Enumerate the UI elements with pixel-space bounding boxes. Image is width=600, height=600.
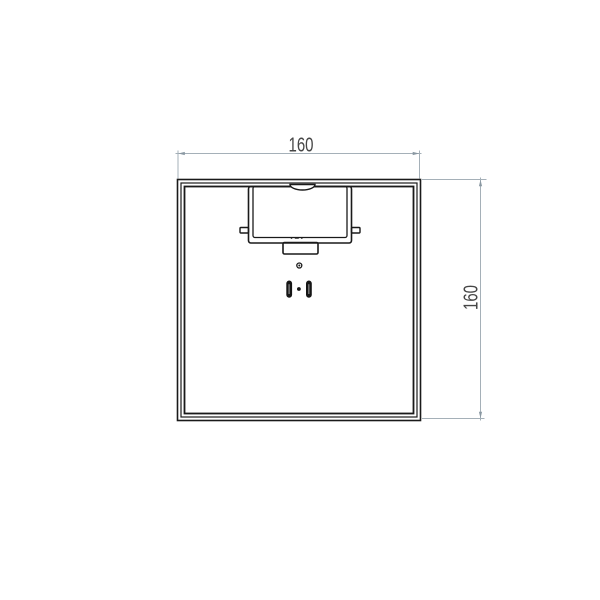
drawing-page: 160 160 xyxy=(0,0,600,600)
latch-dot-right xyxy=(301,237,303,239)
height-dimension-label: 160 xyxy=(461,285,483,310)
part-frame xyxy=(178,180,421,421)
height-arrow-bottom xyxy=(479,412,482,419)
width-arrow-right xyxy=(413,152,420,155)
hole-features xyxy=(286,263,312,298)
box-inner-wall xyxy=(253,187,347,238)
width-arrow-left xyxy=(178,152,185,155)
drawing-canvas: 160 160 xyxy=(0,0,600,600)
latch-dot-left xyxy=(291,237,293,239)
frame-outer-edge xyxy=(178,180,421,421)
box-right-tab xyxy=(352,228,361,234)
width-dimension-label: 160 xyxy=(289,135,314,157)
box-outer-wall xyxy=(249,187,352,244)
box-left-tab xyxy=(240,228,249,234)
mounting-box xyxy=(240,185,360,255)
finger-notch-arc xyxy=(290,185,315,191)
frame-middle-edge xyxy=(181,183,417,417)
left-slot-highlight xyxy=(288,284,289,294)
width-dimension: 160 xyxy=(176,135,422,179)
latch-dash-center xyxy=(295,237,299,239)
height-arrow-top xyxy=(479,180,482,187)
box-bottom-latch xyxy=(283,243,318,255)
center-hole-dot xyxy=(297,287,301,291)
pilot-hole-center xyxy=(298,265,300,267)
height-dimension: 160 xyxy=(422,178,487,421)
right-slot-highlight xyxy=(308,284,309,294)
frame-inner-edge xyxy=(185,187,414,414)
